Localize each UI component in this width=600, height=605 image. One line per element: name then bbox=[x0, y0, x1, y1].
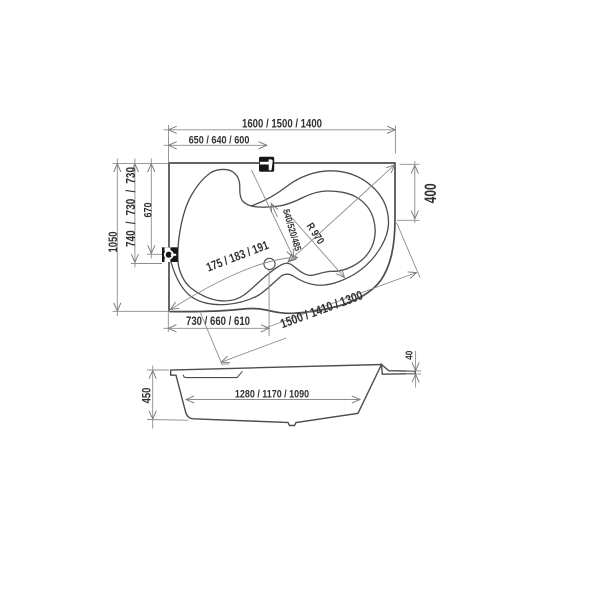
svg-text:40: 40 bbox=[404, 351, 415, 360]
svg-text:730 / 660 / 610: 730 / 660 / 610 bbox=[186, 315, 250, 328]
svg-text:740 / 730 / 730: 740 / 730 / 730 bbox=[125, 167, 138, 247]
svg-text:1600 / 1500 / 1400: 1600 / 1500 / 1400 bbox=[242, 118, 322, 131]
svg-text:650 / 640 / 600: 650 / 640 / 600 bbox=[189, 135, 250, 147]
svg-text:450: 450 bbox=[141, 388, 154, 404]
svg-text:1280 / 1170 / 1090: 1280 / 1170 / 1090 bbox=[235, 389, 309, 401]
svg-text:400: 400 bbox=[422, 183, 440, 203]
svg-text:1050: 1050 bbox=[107, 231, 120, 252]
svg-text:670: 670 bbox=[143, 202, 155, 217]
